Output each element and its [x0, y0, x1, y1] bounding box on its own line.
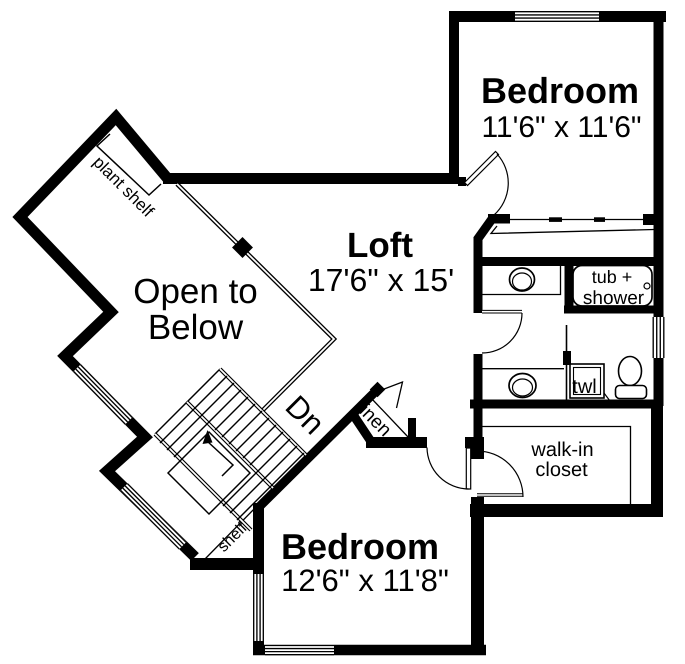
svg-text:closet: closet — [535, 459, 588, 481]
svg-text:11'6" x 11'6": 11'6" x 11'6" — [481, 111, 641, 144]
svg-text:Below: Below — [148, 308, 244, 347]
svg-text:Bedroom: Bedroom — [481, 70, 639, 111]
svg-text:tub +: tub + — [592, 267, 633, 287]
svg-text:Open to: Open to — [133, 272, 258, 311]
svg-text:12'6" x 11'8": 12'6" x 11'8" — [281, 563, 449, 598]
svg-text:walk-in: walk-in — [530, 439, 593, 461]
svg-text:twl: twl — [572, 376, 596, 398]
svg-text:Loft: Loft — [347, 226, 413, 265]
svg-text:shower: shower — [583, 288, 645, 309]
svg-text:17'6" x 15': 17'6" x 15' — [308, 262, 454, 298]
svg-text:Bedroom: Bedroom — [281, 526, 439, 567]
